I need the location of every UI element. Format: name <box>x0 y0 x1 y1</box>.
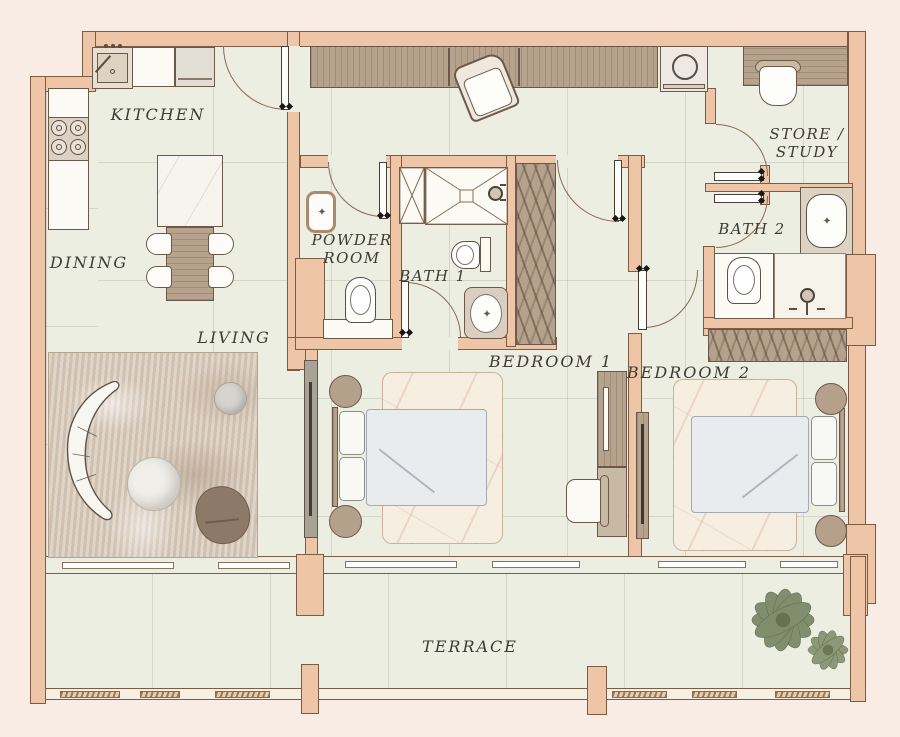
powder-line2: ROOM <box>323 249 380 267</box>
curved-sofa <box>56 378 130 524</box>
store-line2: STUDY <box>776 143 838 161</box>
railing-hatch <box>215 691 270 698</box>
bedroom2-door-leaf <box>638 270 647 330</box>
window-glass <box>218 562 290 569</box>
kitchen-counter-left-lower <box>48 160 89 230</box>
window-glass <box>658 561 746 568</box>
room-label-bath2: BATH 2 <box>718 220 785 238</box>
railing-hatch <box>60 691 120 698</box>
dining-chair <box>208 233 234 255</box>
room-label-dining: DINING <box>50 254 128 272</box>
bed1-headboard <box>332 407 338 507</box>
bedroom2-wardrobe <box>708 329 847 362</box>
bedroom1-door-leaf <box>614 160 622 221</box>
faucet-star-icon: ✦ <box>482 308 491 321</box>
coffee-table-small <box>214 382 247 415</box>
wall-corridor-stub <box>705 88 716 124</box>
terrace-pillar-mid <box>587 666 607 715</box>
fridge-line <box>178 78 212 80</box>
room-label-terrace: TERRACE <box>422 638 518 656</box>
sink-drain-icon <box>110 69 115 74</box>
bed1-desk-mirror <box>603 387 609 451</box>
bed1-mattress <box>366 409 487 506</box>
room-label-bedroom2: BEDROOM 2 <box>627 364 751 382</box>
powder-door-leaf <box>379 162 387 219</box>
nightstand <box>815 383 847 415</box>
floor-plan: ✦ ✦ ✦ <box>0 0 900 737</box>
bed2-pillow <box>811 416 837 460</box>
shower-tap-icon <box>817 308 825 310</box>
room-label-bedroom1: BEDROOM 1 <box>489 353 613 371</box>
store-line1: STORE / <box>769 125 844 143</box>
bed1-chair-back <box>600 475 609 527</box>
study-chair-seat <box>759 66 797 106</box>
bed2-pillow <box>811 462 837 506</box>
railing-hatch <box>140 691 180 698</box>
window-glass <box>780 561 838 568</box>
bath1-toilet-tank <box>480 237 491 272</box>
faucet-star-icon: ✦ <box>822 215 831 228</box>
bed2-mattress <box>691 416 809 513</box>
kitchen-counter-top <box>132 47 175 87</box>
dining-table <box>166 227 214 301</box>
nightstand <box>815 515 847 547</box>
powder-line1: POWDER <box>311 231 392 249</box>
dining-chair <box>208 266 234 288</box>
window-glass <box>62 562 174 569</box>
faucet-star-icon: ✦ <box>317 206 326 219</box>
shower-head-icon <box>800 288 815 303</box>
coffee-table-large <box>127 457 181 511</box>
room-label-powder-room: POWDER ROOM <box>311 231 392 267</box>
wall-powder-pillar <box>295 258 325 346</box>
shower-pipe-icon <box>500 199 506 201</box>
kitchen-door-leaf <box>281 46 289 110</box>
bed1-desk <box>597 371 627 467</box>
bed1-pillow <box>339 411 365 455</box>
window-glass <box>492 561 580 568</box>
washer-drawer <box>663 84 705 89</box>
burner-center-icon <box>75 144 81 150</box>
wall-left <box>30 76 46 704</box>
sink-knob-icon <box>104 44 108 48</box>
kitchen-sink-basin <box>97 53 128 83</box>
kitchen-island <box>157 155 223 227</box>
shower-tap-icon <box>789 308 797 310</box>
fridge <box>175 47 215 87</box>
tv-icon <box>309 382 312 516</box>
window-glass <box>345 561 457 568</box>
burner-center-icon <box>56 144 62 150</box>
bath1-toilet-seat <box>456 245 474 265</box>
wall-top <box>82 31 848 47</box>
plant <box>728 576 860 684</box>
closet-divider <box>518 48 520 86</box>
wall-bed1-bed2-upper <box>628 155 642 272</box>
room-label-living: LIVING <box>197 329 271 347</box>
bath2-toilet-seat <box>733 265 755 295</box>
room-label-kitchen: KITCHEN <box>111 106 206 124</box>
bed2-headboard <box>839 408 845 512</box>
bath2-door-leaf <box>714 194 764 203</box>
store-door-leaf <box>714 172 764 181</box>
closet-divider <box>448 48 450 86</box>
nightstand <box>329 375 362 408</box>
dining-chair <box>146 266 172 288</box>
bath2-shower-floor <box>774 253 846 319</box>
wall-right-pillar-upper <box>846 254 876 346</box>
sink-knob-icon <box>118 44 122 48</box>
linen-closet <box>399 167 425 224</box>
tv-icon <box>641 424 644 524</box>
room-label-bath1: BATH 1 <box>399 267 466 285</box>
railing-hatch <box>612 691 667 698</box>
opening-bath1-door <box>402 337 458 350</box>
shower-pipe-icon <box>500 184 506 186</box>
kitchen-counter-left-upper <box>48 88 89 118</box>
bed1-pillow <box>339 457 365 501</box>
powder-toilet-seat <box>350 285 371 315</box>
sink-knob-icon <box>111 44 115 48</box>
burner-center-icon <box>56 125 62 131</box>
nightstand <box>329 505 362 538</box>
terrace-pillar-left <box>301 664 319 714</box>
window-pier-1 <box>296 554 324 616</box>
room-label-store-study: STORE / STUDY <box>769 125 844 161</box>
washer-drum-icon <box>672 54 698 80</box>
railing-hatch <box>692 691 737 698</box>
railing-hatch <box>775 691 830 698</box>
burner-center-icon <box>75 125 81 131</box>
dining-chair <box>146 233 172 255</box>
bedroom1-wardrobe <box>516 163 556 345</box>
shower-pipe-icon <box>806 303 808 315</box>
